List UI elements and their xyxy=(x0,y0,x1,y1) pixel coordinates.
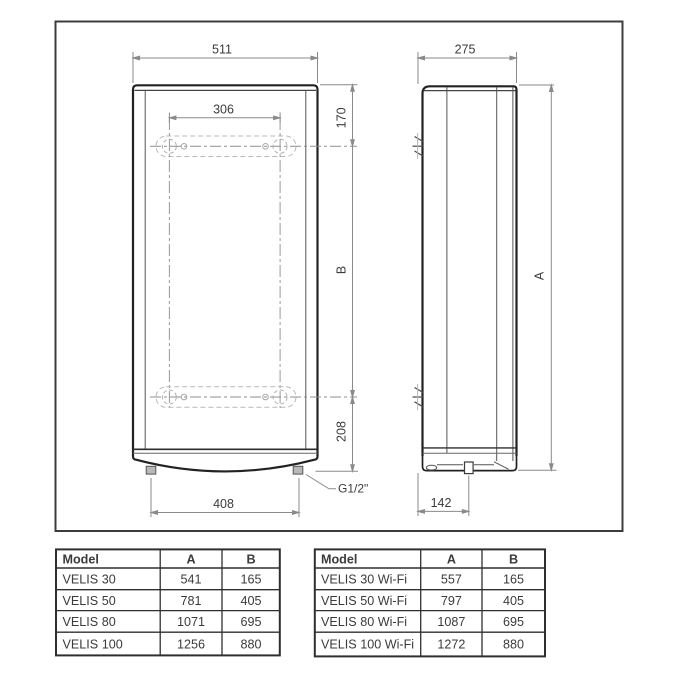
svg-text:Model: Model xyxy=(63,553,99,567)
svg-text:B: B xyxy=(509,553,518,567)
svg-text:165: 165 xyxy=(240,573,261,587)
svg-text:1087: 1087 xyxy=(437,615,465,629)
svg-text:1071: 1071 xyxy=(177,615,205,629)
svg-text:695: 695 xyxy=(240,615,261,629)
svg-text:541: 541 xyxy=(180,573,201,587)
svg-text:A: A xyxy=(533,271,547,280)
svg-text:142: 142 xyxy=(431,496,452,510)
svg-text:VELIS 30 Wi-Fi: VELIS 30 Wi-Fi xyxy=(321,573,407,587)
svg-text:Model: Model xyxy=(321,553,357,567)
svg-text:695: 695 xyxy=(503,615,524,629)
svg-text:1272: 1272 xyxy=(437,638,465,652)
svg-text:A: A xyxy=(447,553,456,567)
svg-text:VELIS 80 Wi-Fi: VELIS 80 Wi-Fi xyxy=(321,615,407,629)
svg-text:VELIS 50: VELIS 50 xyxy=(63,594,116,608)
svg-text:VELIS 50 Wi-Fi: VELIS 50 Wi-Fi xyxy=(321,594,407,608)
svg-text:405: 405 xyxy=(240,594,261,608)
svg-text:557: 557 xyxy=(441,573,462,587)
svg-text:170: 170 xyxy=(335,107,349,128)
svg-text:A: A xyxy=(186,553,195,567)
svg-text:VELIS 100 Wi-Fi: VELIS 100 Wi-Fi xyxy=(321,638,414,652)
svg-text:405: 405 xyxy=(503,594,524,608)
svg-text:880: 880 xyxy=(240,638,261,652)
svg-text:VELIS 80: VELIS 80 xyxy=(63,615,116,629)
svg-text:VELIS 30: VELIS 30 xyxy=(63,573,116,587)
svg-text:VELIS 100: VELIS 100 xyxy=(63,638,123,652)
svg-text:880: 880 xyxy=(503,638,524,652)
svg-text:511: 511 xyxy=(212,43,232,57)
svg-text:G1/2": G1/2" xyxy=(338,482,368,496)
svg-text:1256: 1256 xyxy=(177,638,205,652)
svg-text:208: 208 xyxy=(335,421,349,442)
svg-text:165: 165 xyxy=(503,573,524,587)
svg-text:797: 797 xyxy=(441,594,462,608)
svg-text:306: 306 xyxy=(213,103,234,117)
svg-text:781: 781 xyxy=(180,594,201,608)
svg-text:408: 408 xyxy=(213,497,234,511)
svg-text:B: B xyxy=(246,553,255,567)
svg-text:B: B xyxy=(335,266,349,274)
svg-text:275: 275 xyxy=(455,43,476,57)
